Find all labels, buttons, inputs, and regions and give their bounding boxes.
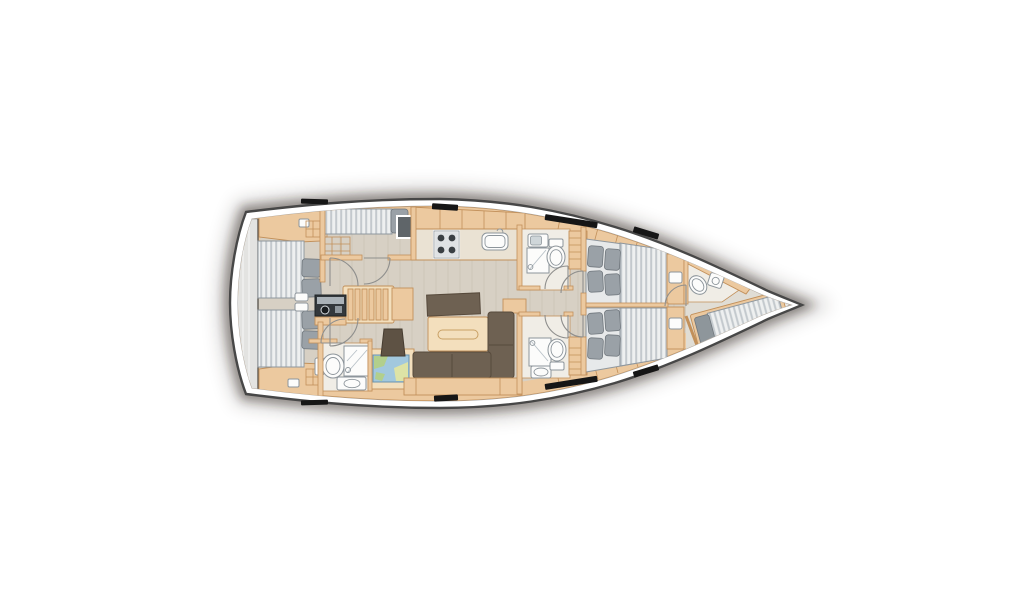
instrument-display xyxy=(317,297,344,304)
wall xyxy=(309,339,337,343)
pillow-icon xyxy=(587,312,603,334)
basin-bowl xyxy=(531,236,542,245)
double-berth-mattress xyxy=(620,243,667,304)
head-mid-starboard xyxy=(521,316,570,378)
centerline-step xyxy=(295,293,308,301)
aft-head xyxy=(315,343,372,391)
bulkhead xyxy=(318,322,323,396)
pillow-icon xyxy=(302,259,322,278)
deck-fitting-icon xyxy=(299,219,309,227)
pillow-icon xyxy=(604,274,620,296)
bulkhead xyxy=(581,293,586,315)
bulkhead xyxy=(581,227,586,271)
berth-divider xyxy=(586,303,668,307)
bulkhead xyxy=(517,225,522,290)
sideboard xyxy=(427,293,481,316)
double-berth-mattress xyxy=(620,308,667,366)
cabinet xyxy=(392,288,413,320)
wall xyxy=(368,341,372,391)
page: { "meta": { "diagram_type": "sailing-yac… xyxy=(0,0,1024,600)
hull-window xyxy=(301,400,328,406)
pillow-icon xyxy=(604,249,620,271)
bulkhead xyxy=(517,314,522,394)
yacht-deck-plan xyxy=(0,0,1024,600)
dining-table xyxy=(428,317,488,351)
bulkhead xyxy=(321,255,362,260)
single-berth-mattress xyxy=(322,209,392,234)
pillow-icon xyxy=(604,309,620,331)
reading-light-icon xyxy=(669,318,682,329)
bulkhead xyxy=(320,210,325,282)
pillow-icon xyxy=(587,338,603,360)
bulkhead xyxy=(411,207,416,260)
pillow-icon xyxy=(587,271,603,293)
wall xyxy=(519,286,540,290)
vent-grid-icon xyxy=(288,379,299,387)
bulkhead xyxy=(581,337,586,375)
cabinet xyxy=(503,299,526,313)
double-berth-mattress xyxy=(258,310,304,367)
centerline-step xyxy=(295,303,308,311)
toilet-tank xyxy=(550,362,564,370)
interior xyxy=(230,206,791,401)
sofa-base-locker xyxy=(404,378,522,395)
refrigerator xyxy=(397,216,412,238)
head-mid-port xyxy=(521,229,570,290)
speaker-icon xyxy=(335,306,342,313)
bulkhead xyxy=(388,255,413,260)
navigator-stool xyxy=(381,329,405,356)
reading-light-icon xyxy=(669,272,682,283)
wall xyxy=(519,312,540,316)
pillow-icon xyxy=(604,335,620,357)
double-berth-mattress xyxy=(258,241,304,298)
hull-window xyxy=(301,199,328,205)
stove xyxy=(434,231,459,258)
knob-icon xyxy=(321,306,329,314)
pillow-icon xyxy=(587,246,603,268)
